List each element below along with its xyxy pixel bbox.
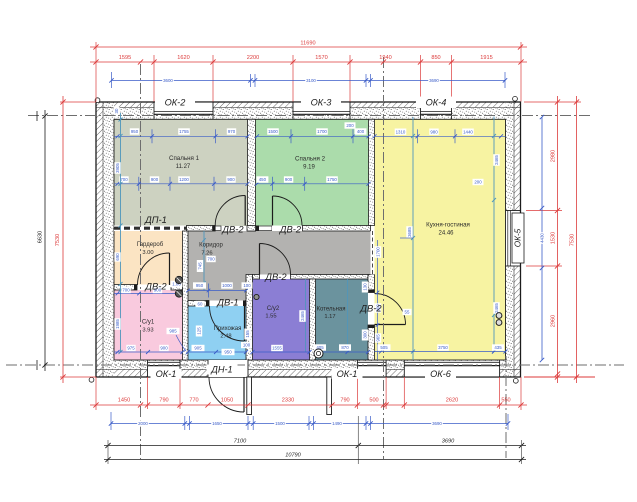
svg-text:900: 900 [160, 346, 168, 351]
svg-text:300: 300 [363, 331, 368, 339]
svg-text:ОК-5: ОК-5 [514, 228, 523, 247]
svg-text:700: 700 [120, 177, 128, 182]
svg-text:1915: 1915 [480, 55, 492, 61]
svg-text:1700: 1700 [376, 247, 381, 257]
svg-text:400: 400 [357, 129, 365, 134]
svg-text:900: 900 [151, 177, 159, 182]
svg-text:900: 900 [227, 177, 235, 182]
svg-text:100: 100 [243, 343, 251, 348]
svg-text:950: 950 [131, 129, 139, 134]
svg-text:С/у1: С/у1 [142, 320, 155, 326]
svg-text:ОК-3: ОК-3 [311, 98, 333, 108]
svg-text:2465: 2465 [494, 155, 499, 165]
svg-text:965: 965 [376, 334, 381, 342]
svg-text:3690: 3690 [442, 439, 455, 445]
svg-text:2620: 2620 [446, 398, 458, 404]
svg-text:7.26: 7.26 [201, 251, 212, 257]
svg-text:200: 200 [346, 123, 354, 128]
svg-text:690: 690 [115, 253, 120, 261]
svg-text:ДВ-2: ДВ-2 [359, 303, 382, 314]
svg-text:3690: 3690 [432, 421, 442, 426]
svg-text:ДН-1: ДН-1 [210, 365, 232, 375]
svg-text:700: 700 [207, 257, 215, 262]
svg-text:125: 125 [197, 327, 202, 335]
svg-text:4430: 4430 [540, 233, 545, 243]
svg-text:790: 790 [159, 398, 168, 404]
svg-text:1555: 1555 [272, 346, 282, 351]
svg-text:1750: 1750 [327, 177, 337, 182]
svg-text:950: 950 [196, 283, 204, 288]
svg-text:1595: 1595 [119, 55, 131, 61]
svg-text:100: 100 [243, 283, 251, 288]
svg-text:200: 200 [474, 180, 482, 185]
svg-text:3.93: 3.93 [142, 328, 153, 334]
svg-text:1310: 1310 [396, 129, 406, 134]
svg-text:ДВ-2: ДВ-2 [264, 271, 287, 282]
svg-text:850: 850 [431, 55, 440, 61]
svg-text:7100: 7100 [234, 439, 247, 445]
svg-text:60: 60 [198, 302, 203, 307]
svg-text:1940: 1940 [379, 55, 391, 61]
svg-text:ДВ-2: ДВ-2 [144, 281, 167, 292]
svg-text:155: 155 [245, 330, 250, 338]
svg-text:2.48: 2.48 [220, 334, 231, 340]
svg-text:6630: 6630 [38, 231, 44, 243]
svg-text:900: 900 [285, 177, 293, 182]
svg-text:7530: 7530 [55, 234, 61, 246]
svg-text:2000: 2000 [138, 421, 148, 426]
svg-text:Коридор: Коридор [199, 243, 223, 249]
svg-text:870: 870 [341, 345, 349, 350]
svg-text:7530: 7530 [570, 234, 576, 246]
svg-text:1050: 1050 [221, 398, 233, 404]
svg-text:Котельная: Котельная [316, 307, 345, 313]
svg-text:790: 790 [340, 398, 349, 404]
svg-text:1.55: 1.55 [265, 314, 276, 320]
svg-text:500: 500 [369, 398, 378, 404]
svg-text:745: 745 [198, 262, 203, 270]
svg-text:9.19: 9.19 [303, 165, 315, 171]
svg-text:1570: 1570 [315, 55, 327, 61]
svg-text:1450: 1450 [118, 398, 130, 404]
svg-text:2465: 2465 [494, 303, 499, 313]
svg-text:2330: 2330 [282, 398, 294, 404]
svg-text:1530: 1530 [551, 232, 557, 244]
svg-text:55: 55 [405, 310, 410, 315]
svg-text:3690: 3690 [429, 78, 439, 83]
svg-text:985: 985 [169, 329, 177, 334]
svg-text:ДВ-2: ДВ-2 [279, 224, 302, 235]
svg-text:ДВ-2: ДВ-2 [221, 224, 244, 235]
svg-text:975: 975 [127, 346, 135, 351]
svg-text:2980: 2980 [551, 150, 557, 162]
svg-text:435: 435 [494, 345, 502, 350]
svg-text:1500: 1500 [268, 129, 278, 134]
svg-text:2200: 2200 [247, 55, 259, 61]
svg-text:1200: 1200 [179, 177, 189, 182]
svg-text:24.46: 24.46 [438, 231, 454, 237]
svg-text:550: 550 [501, 398, 510, 404]
svg-text:450: 450 [259, 177, 267, 182]
svg-text:1490: 1490 [332, 421, 342, 426]
svg-text:10790: 10790 [285, 453, 301, 459]
svg-text:1700: 1700 [317, 129, 327, 134]
svg-text:2960: 2960 [551, 315, 557, 327]
svg-text:1650: 1650 [212, 421, 222, 426]
svg-text:980: 980 [430, 129, 438, 134]
svg-text:ОК-2: ОК-2 [165, 98, 186, 108]
svg-text:Спальня 1: Спальня 1 [169, 155, 200, 162]
svg-text:1.17: 1.17 [324, 314, 335, 320]
svg-text:950: 950 [224, 350, 232, 355]
svg-text:2465: 2465 [300, 311, 305, 321]
svg-text:700: 700 [122, 288, 130, 293]
svg-text:970: 970 [228, 129, 236, 134]
svg-text:Кухня-гостиная: Кухня-гостиная [426, 222, 470, 229]
svg-text:ОК-6: ОК-6 [430, 369, 452, 379]
svg-text:Прихожая: Прихожая [214, 326, 242, 332]
svg-text:1440: 1440 [463, 129, 473, 134]
svg-text:ДП-1: ДП-1 [144, 214, 167, 225]
svg-text:30: 30 [114, 108, 119, 113]
svg-text:770: 770 [189, 398, 198, 404]
svg-text:1755: 1755 [179, 129, 189, 134]
svg-text:3685: 3685 [407, 227, 412, 237]
svg-text:1500: 1500 [275, 421, 285, 426]
svg-text:905: 905 [194, 346, 202, 351]
svg-text:3905: 3905 [115, 163, 120, 173]
svg-text:130: 130 [363, 283, 368, 291]
svg-text:3750: 3750 [438, 345, 448, 350]
svg-text:11.27: 11.27 [176, 164, 191, 170]
svg-text:1985: 1985 [115, 319, 120, 329]
svg-text:3100: 3100 [306, 78, 316, 83]
svg-text:3600: 3600 [163, 78, 173, 83]
svg-text:1000: 1000 [222, 283, 232, 288]
svg-text:3.00: 3.00 [142, 250, 153, 256]
svg-text:Гардероб: Гардероб [137, 242, 164, 248]
svg-text:Спальня 2: Спальня 2 [295, 156, 326, 163]
svg-text:505: 505 [380, 345, 388, 350]
svg-text:11690: 11690 [300, 41, 315, 47]
svg-text:С/у2: С/у2 [267, 306, 280, 312]
svg-text:ОК-1: ОК-1 [156, 369, 177, 379]
svg-text:ОК-4: ОК-4 [426, 98, 447, 108]
svg-text:1620: 1620 [177, 55, 189, 61]
svg-text:ОК-1: ОК-1 [337, 369, 358, 379]
svg-text:ДВ-1: ДВ-1 [216, 297, 238, 308]
